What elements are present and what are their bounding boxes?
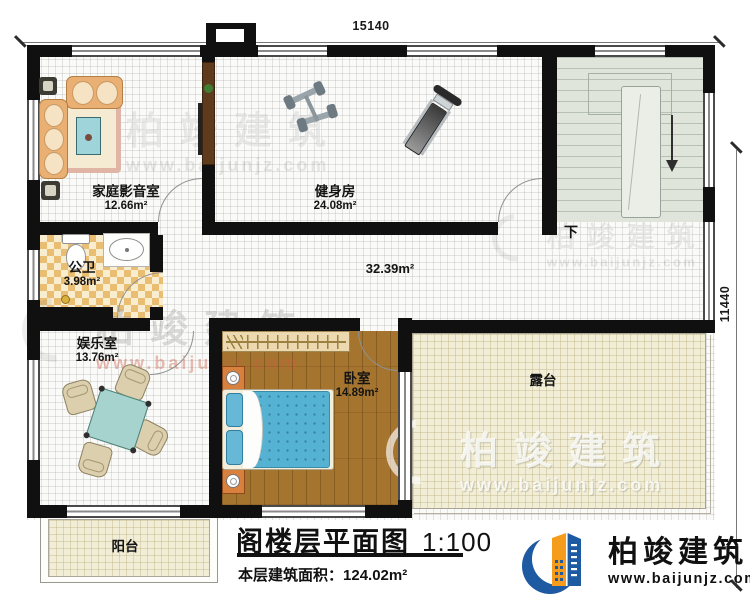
- wall: [327, 45, 407, 57]
- stair-direction-line: [671, 115, 673, 160]
- floor-area-prefix: 本层建筑面积：: [238, 567, 343, 584]
- wall: [703, 45, 715, 93]
- wall: [222, 505, 262, 518]
- lamp: [226, 371, 240, 385]
- window: [262, 505, 365, 518]
- wall: [398, 320, 715, 333]
- toilet-tank: [62, 234, 90, 244]
- wall: [703, 187, 715, 222]
- floor-drain: [61, 295, 70, 304]
- stair-down-label: 下: [558, 224, 584, 240]
- wall: [27, 505, 67, 518]
- wall: [202, 165, 215, 235]
- wall: [27, 180, 40, 250]
- wall: [215, 222, 498, 235]
- room-label-gym: 健身房 24.08m²: [275, 184, 395, 213]
- flue-opening: [216, 29, 244, 42]
- wall: [365, 505, 412, 518]
- brand-logo-icon: [516, 530, 600, 594]
- sofa: [39, 99, 68, 179]
- sink: [109, 238, 144, 261]
- brand-url: www.baijunjz.com: [608, 571, 750, 587]
- pillow: [226, 430, 243, 465]
- wall: [542, 45, 557, 235]
- terrace-railing: [414, 513, 711, 514]
- room-label-hallway-area: 32.39m²: [338, 262, 442, 277]
- room-label-balcony: 阳台: [75, 539, 175, 555]
- lamp: [226, 474, 240, 488]
- dimension-line-top: [20, 42, 722, 43]
- title-underline: [237, 553, 463, 557]
- window: [595, 45, 665, 57]
- down-arrow-icon: [666, 160, 678, 172]
- wall: [398, 318, 412, 372]
- room-label-terrace: 露台: [493, 373, 593, 389]
- window: [407, 45, 497, 57]
- balcony-sliding-door: [67, 505, 180, 518]
- stair-landing: [621, 86, 661, 218]
- pillow: [226, 393, 243, 427]
- sofa: [66, 76, 123, 109]
- room-label-home-theater: 家庭影音室 12.66m²: [56, 184, 196, 213]
- window: [27, 360, 40, 460]
- floor-area-value: 124.02m²: [343, 567, 407, 584]
- window: [72, 45, 200, 57]
- wall: [209, 318, 222, 518]
- floor-area-line: 本层建筑面积：124.02m²: [238, 564, 407, 585]
- room-label-entertainment: 娱乐室 13.76m²: [47, 336, 147, 365]
- window: [258, 45, 327, 57]
- window: [703, 222, 715, 320]
- wall: [180, 505, 222, 518]
- wall: [202, 45, 215, 62]
- terrace-railing: [710, 335, 711, 513]
- room-label-bedroom: 卧室 14.89m²: [307, 371, 407, 400]
- brand-name: 柏竣建筑: [608, 537, 750, 569]
- dimension-line-right: [736, 150, 737, 588]
- room-label-bathroom: 公卫 3.98m²: [42, 260, 122, 289]
- coffee-table: [76, 117, 101, 155]
- window: [703, 93, 715, 187]
- brand-logo: 柏竣建筑 www.baijunjz.com: [516, 530, 750, 594]
- window: [27, 250, 40, 300]
- wall: [222, 318, 360, 331]
- plant: [204, 84, 213, 93]
- terrace-floor: [412, 333, 706, 509]
- dimension-right-value: 11440: [718, 274, 732, 334]
- wall: [150, 235, 163, 272]
- wardrobe: [222, 331, 350, 352]
- speaker: [39, 77, 57, 95]
- sliding-door: [202, 62, 215, 165]
- floor-plan: 15140 11440 柏竣建筑 www.baijunjz.com 柏竣建筑 w…: [0, 0, 750, 601]
- wall: [27, 318, 150, 331]
- dimension-top-value: 15140: [321, 19, 421, 33]
- tv: [198, 103, 202, 155]
